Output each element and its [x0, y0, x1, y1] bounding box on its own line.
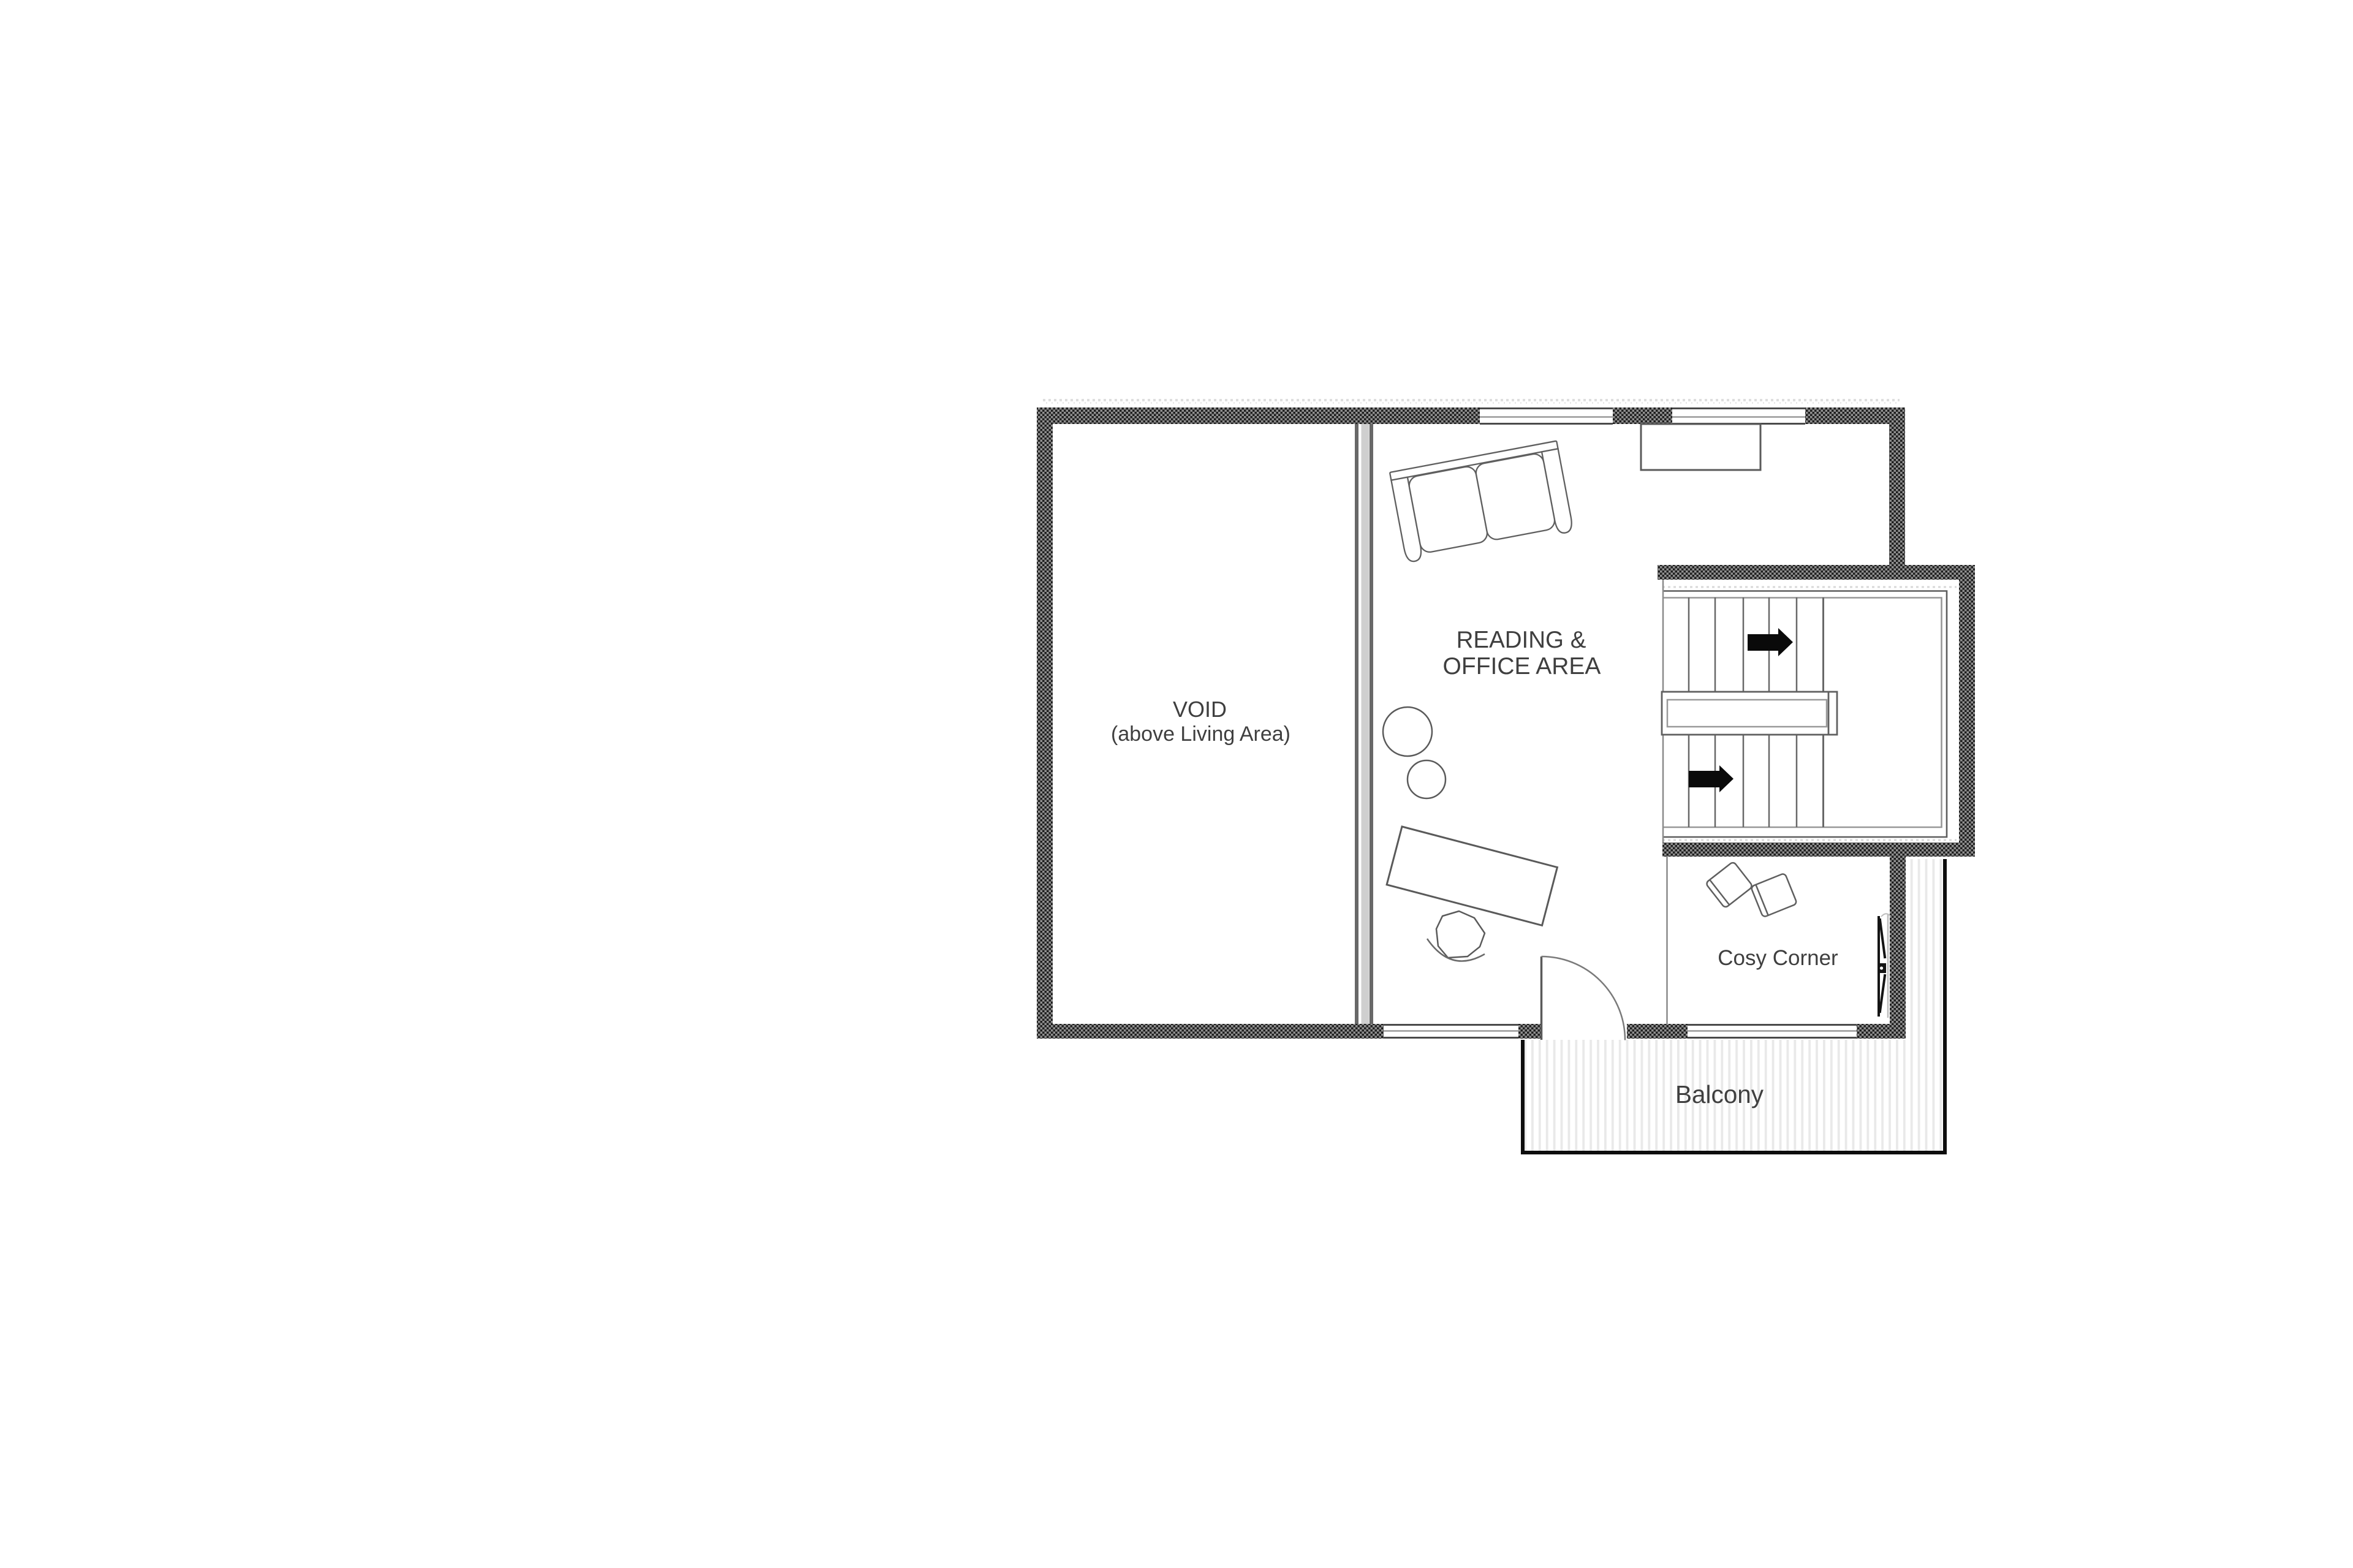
svg-text:READING &: READING &: [1457, 627, 1586, 653]
svg-text:VOID: VOID: [1173, 697, 1227, 722]
svg-text:OFFICE AREA: OFFICE AREA: [1443, 653, 1601, 680]
svg-text:Cosy Corner: Cosy Corner: [1718, 946, 1838, 970]
svg-text:Balcony: Balcony: [1675, 1080, 1764, 1108]
svg-text:(above Living Area): (above Living Area): [1111, 722, 1290, 746]
